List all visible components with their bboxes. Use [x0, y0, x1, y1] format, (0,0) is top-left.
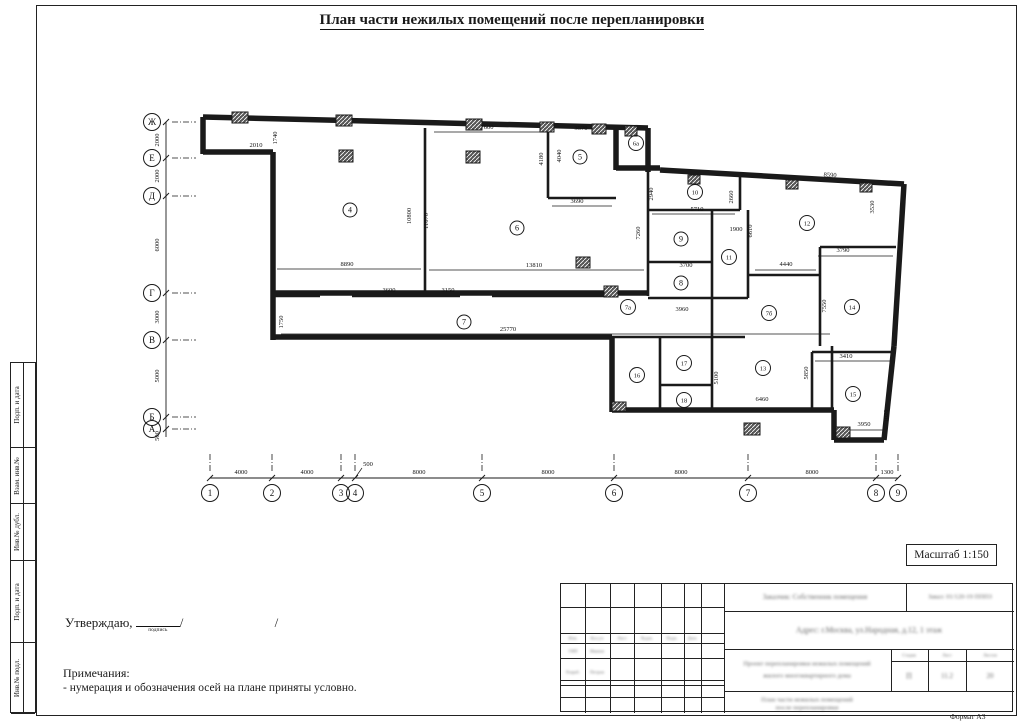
room-number: 10: [692, 190, 699, 197]
room-number: 14: [849, 305, 856, 312]
dim-text: 6460: [756, 396, 769, 403]
room-number: 15: [850, 392, 857, 399]
column-pier: [466, 151, 480, 163]
axis-dim: 2000: [154, 170, 161, 183]
axis-dim: 8000: [806, 469, 819, 476]
axis-dim: 3000: [154, 311, 161, 324]
axis-dim-leader: 500: [363, 461, 373, 468]
column-pier: [612, 402, 626, 411]
axis-label: 7: [746, 488, 751, 498]
approve-line: Утверждаю, подпись / /: [65, 614, 278, 631]
title-block-line: [684, 584, 685, 713]
axis-dim: 8000: [413, 469, 426, 476]
column-pier: [592, 124, 606, 134]
axis-label: 9: [896, 488, 901, 498]
title-block-line: [891, 649, 892, 691]
title-block-text: ГИП: [568, 649, 577, 654]
axis-label: 1: [208, 488, 213, 498]
room-number: 12: [804, 221, 811, 228]
title-block-text: План части нежилых помещений: [761, 697, 853, 704]
axis-dim: 1300: [881, 469, 894, 476]
title-block-line: [724, 611, 1014, 612]
column-pier: [232, 112, 248, 123]
dim-text: 3570: [575, 125, 588, 132]
title-block-line: [561, 680, 724, 681]
axis-dim: 8000: [675, 469, 688, 476]
title-block-line: [701, 584, 702, 713]
title-block-line: [966, 649, 967, 691]
title-block-line: [724, 649, 1014, 650]
dim-text: 1740: [272, 132, 279, 145]
title-block-line: [610, 584, 611, 713]
axis-label: 2: [270, 488, 275, 498]
room-number: 7: [462, 318, 466, 327]
room-number: 4: [348, 206, 352, 215]
dim-text: 5710: [691, 206, 704, 213]
title-block: Заказчик: Собственник помещенияЗаказ: 01…: [560, 583, 1013, 712]
dim-text: 3410: [840, 353, 853, 360]
dim-text: 1900: [730, 226, 743, 233]
scale-box: Масштаб 1:150: [906, 544, 997, 566]
title-block-text: Кол.уч: [591, 636, 604, 641]
title-block-line: [561, 658, 724, 659]
approve-slash-1: /: [180, 615, 184, 630]
axis-label: Ж: [148, 117, 157, 127]
room-number: 18: [681, 398, 688, 405]
title-block-line: [724, 691, 1014, 692]
column-pier: [576, 257, 590, 268]
approve-label: Утверждаю,: [65, 615, 133, 630]
title-block-text: Лист: [942, 653, 951, 658]
axis-dim: 2000: [154, 134, 161, 147]
axis-label: 6: [612, 488, 617, 498]
notes-block: Примечания: - нумерация и обозначения ос…: [63, 666, 357, 695]
approve-slash-2: /: [275, 615, 279, 630]
room-number: 9: [679, 235, 683, 244]
drawing-sheet: План части нежилых помещений после переп…: [0, 0, 1024, 724]
title-block-text: Дата: [688, 636, 697, 641]
axis-label: 5: [480, 488, 485, 498]
exterior-wall: [884, 346, 894, 440]
scale-label: Масштаб 1:150: [914, 549, 988, 561]
title-block-text: Петров: [590, 670, 604, 675]
title-block-line: [561, 633, 724, 634]
signature-blank: подпись: [136, 614, 180, 627]
title-block-line: [891, 661, 1014, 662]
room-number: 16: [634, 373, 641, 380]
title-block-text: №док.: [641, 636, 653, 641]
dim-text: 13810: [526, 262, 542, 269]
dim-text: 2010: [250, 142, 263, 149]
notes-heading: Примечания:: [63, 666, 357, 681]
axis-label: Д: [149, 191, 155, 201]
dim-text: 4180: [538, 153, 545, 166]
column-pier: [625, 126, 637, 136]
axis-dim: 8000: [542, 469, 555, 476]
title-block-line: [561, 607, 724, 608]
exterior-wall: [894, 184, 904, 346]
title-block-line: [561, 685, 724, 686]
axis-label: В: [149, 335, 155, 345]
axis-dim: 6000: [154, 239, 161, 252]
axis-label: 3: [339, 488, 344, 498]
dim-text: 5100: [713, 372, 720, 385]
title-block-line: [661, 584, 662, 713]
dim-text: 3960: [676, 306, 689, 313]
notes-item: - нумерация и обозначения осей на плане …: [63, 681, 357, 695]
dim-text: 8590: [823, 172, 836, 180]
dim-text: 2660: [728, 191, 735, 204]
title-block-text: Заказчик: Собственник помещения: [763, 593, 868, 601]
title-block-text: Адрес: г.Москва, ул.Народная, д.12, 1 эт…: [796, 626, 942, 635]
title-block-text: 11.2: [941, 672, 953, 680]
axis-label: 8: [874, 488, 879, 498]
dim-text: 5850: [803, 367, 810, 380]
axis-dim: 4000: [301, 469, 314, 476]
room-number: 7б: [766, 311, 773, 318]
dim-text: 3530: [869, 201, 876, 214]
title-block-line: [585, 584, 586, 713]
title-block-text: Разраб.: [566, 670, 580, 675]
room-number: 6: [515, 224, 519, 233]
dim-text: 3690: [571, 198, 584, 205]
dim-text: 7260: [635, 227, 642, 240]
room-number: 11: [726, 255, 732, 262]
column-pier: [860, 183, 872, 192]
title-block-text: Проект перепланировки нежилых помещений: [743, 661, 870, 668]
column-pier: [336, 115, 352, 126]
room-number: 13: [760, 366, 767, 373]
room-number: 6а: [633, 141, 639, 148]
title-block-line: [634, 584, 635, 713]
column-pier: [688, 175, 700, 184]
room-number: 17: [681, 361, 688, 368]
title-block-text: Заказ: 01/120-19 ПППЗ: [928, 594, 992, 601]
signature-caption: подпись: [136, 627, 180, 633]
dim-text: 1020: [883, 410, 890, 423]
axis-dim: 500: [154, 431, 161, 441]
title-block-text: Лист: [617, 636, 626, 641]
title-block-text: 20: [987, 672, 994, 680]
format-label: Формат А3: [950, 712, 985, 721]
title-block-text: жилого многоквартирного дома: [763, 673, 851, 680]
dim-text: 25770: [500, 326, 516, 333]
title-block-text: П: [906, 672, 912, 681]
dim-text: 7550: [821, 300, 828, 313]
room-number: 7а: [625, 305, 631, 312]
dim-text: 7600: [481, 124, 494, 131]
title-block-text: Иванов: [590, 649, 604, 654]
title-block-text: после перепланировки: [776, 705, 839, 712]
title-block-text: Стадия: [902, 653, 916, 658]
title-block-text: Подп.: [666, 636, 677, 641]
column-pier: [836, 427, 850, 438]
axis-dim: 5000: [154, 370, 161, 383]
title-block-line: [561, 697, 724, 698]
dim-text: 2940: [648, 188, 655, 201]
dim-text: 8890: [341, 261, 354, 268]
dim-text: 10800: [406, 208, 413, 224]
dim-text: 3950: [858, 421, 871, 428]
column-pier: [339, 150, 353, 162]
dim-text: 4440: [780, 261, 793, 268]
dim-text: 3790: [837, 247, 850, 254]
title-block-text: Листов: [983, 653, 997, 658]
dim-text: 4040: [556, 150, 563, 163]
dim-text: 6610: [747, 225, 754, 238]
dim-text: 11070: [423, 213, 430, 229]
column-pier: [744, 423, 760, 435]
room-number: 5: [578, 153, 582, 162]
axis-dim: 4000: [235, 469, 248, 476]
column-pier: [786, 180, 798, 189]
axis-label: Г: [149, 288, 154, 298]
dim-text: 3700: [680, 262, 693, 269]
axis-label: Е: [149, 153, 155, 163]
dim-text: 3150: [442, 287, 455, 294]
title-block-line: [928, 649, 929, 691]
title-block-line: [906, 584, 907, 611]
title-block-text: Изм.: [569, 636, 578, 641]
column-pier: [604, 286, 618, 297]
dim-text: 1750: [278, 316, 285, 329]
room-number: 8: [679, 279, 683, 288]
axis-label: 4: [353, 488, 358, 498]
dim-text: 3600: [383, 287, 396, 294]
column-pier: [540, 122, 554, 132]
title-block-line: [561, 643, 724, 644]
